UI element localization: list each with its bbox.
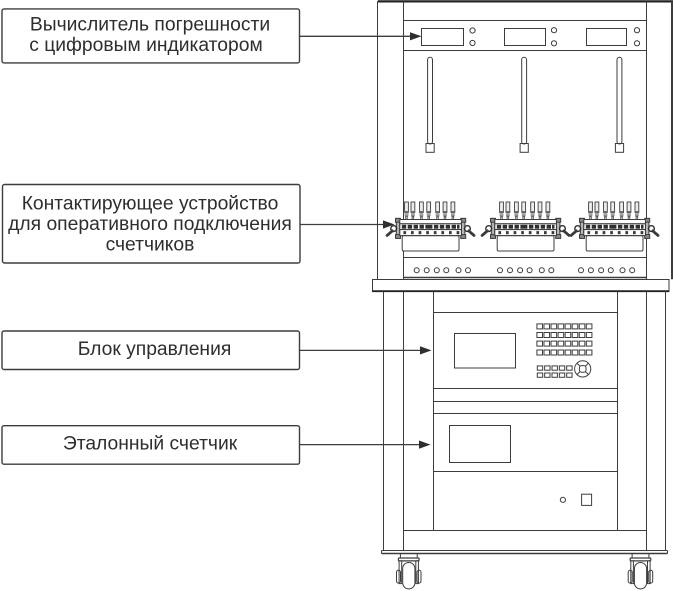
svg-text:счетчиков: счетчиков bbox=[106, 234, 195, 255]
svg-text:Блок управления: Блок управления bbox=[78, 339, 232, 360]
svg-text:Эталонный счетчик: Эталонный счетчик bbox=[63, 434, 238, 455]
svg-text:Контактирующее устройство: Контактирующее устройство bbox=[22, 193, 279, 214]
svg-text:с цифровым индикатором: с цифровым индикатором bbox=[29, 35, 262, 56]
svg-text:Вычислитель погрешности: Вычислитель погрешности bbox=[30, 15, 270, 36]
svg-text:для оперативного подключения: для оперативного подключения bbox=[8, 214, 292, 235]
